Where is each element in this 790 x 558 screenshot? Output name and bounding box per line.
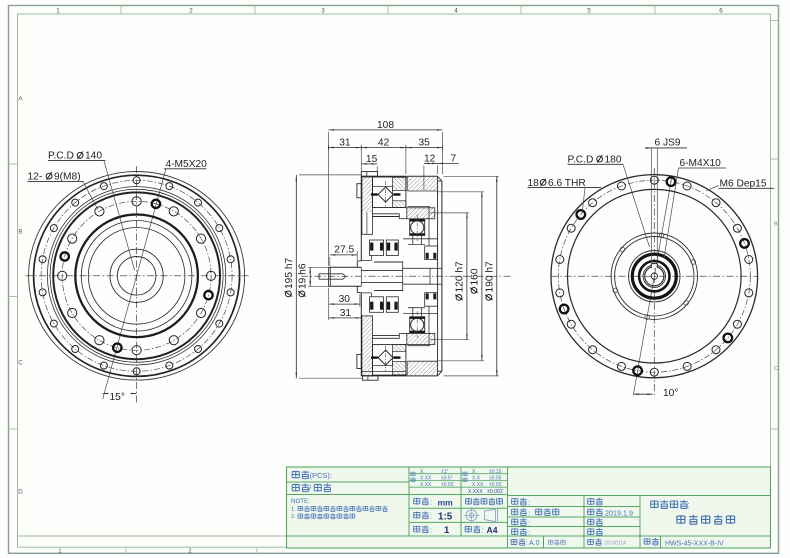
svg-text::: : (528, 508, 530, 517)
svg-text:(PCS):: (PCS): (310, 471, 333, 480)
svg-text:5: 5 (587, 8, 591, 15)
svg-text:C: C (18, 360, 23, 367)
svg-text:27.5: 27.5 (334, 245, 354, 256)
svg-text:2: 2 (188, 549, 191, 555)
svg-text::: : (687, 500, 689, 510)
svg-text:160: 160 (469, 268, 480, 285)
svg-text:20190114: 20190114 (604, 541, 626, 547)
svg-text:M6 Dep15: M6 Dep15 (720, 179, 767, 190)
svg-text:6: 6 (719, 8, 723, 15)
svg-text:±0.5°: ±0.5° (441, 476, 453, 482)
svg-text::: : (430, 512, 432, 521)
svg-text:18: 18 (528, 178, 540, 189)
svg-text:9(M8): 9(M8) (54, 172, 81, 183)
svg-text:±0.02: ±0.02 (441, 482, 454, 488)
svg-text:15: 15 (366, 154, 378, 165)
svg-text:A4: A4 (487, 525, 498, 535)
svg-text:±0.05: ±0.05 (489, 476, 502, 482)
svg-text:X.: X. (420, 469, 425, 475)
svg-text:140: 140 (85, 151, 102, 162)
svg-text:: A.0: : A.0 (526, 540, 540, 547)
svg-text:190 h7: 190 h7 (484, 261, 495, 292)
svg-text:1:5: 1:5 (438, 511, 453, 522)
svg-text:X.XX: X.XX (420, 476, 432, 482)
svg-text:NOTE:: NOTE: (291, 498, 310, 505)
svg-text:2019.1.9: 2019.1.9 (605, 508, 633, 517)
svg-text:7: 7 (450, 153, 456, 164)
svg-text:1: 1 (56, 8, 60, 15)
svg-text:19 h6: 19 h6 (297, 263, 308, 289)
svg-text:12-: 12- (28, 172, 43, 183)
svg-text:±0.02: ±0.02 (489, 482, 502, 488)
svg-text::: : (430, 498, 432, 507)
svg-text:X.: X. (472, 469, 477, 475)
svg-text:35: 35 (419, 138, 431, 149)
svg-text:1: 1 (58, 549, 61, 555)
svg-text:12: 12 (424, 153, 436, 164)
svg-text:2: 2 (189, 8, 193, 15)
svg-text:10°: 10° (663, 388, 678, 399)
svg-text:±0.15: ±0.15 (489, 469, 502, 475)
svg-text:120 h7: 120 h7 (454, 261, 465, 292)
svg-text:2.: 2. (291, 514, 296, 520)
svg-text:31: 31 (339, 138, 351, 149)
svg-text:P.C.D: P.C.D (48, 151, 74, 162)
svg-text:108: 108 (377, 120, 394, 131)
svg-text:180: 180 (605, 154, 622, 165)
svg-text:B: B (774, 222, 778, 228)
svg-text::: : (657, 538, 659, 547)
svg-text:30: 30 (339, 294, 351, 305)
svg-text:195 h7: 195 h7 (284, 258, 295, 289)
svg-text:C: C (774, 366, 778, 372)
svg-text::: : (528, 498, 530, 507)
svg-text:6-M4X10: 6-M4X10 (680, 158, 722, 169)
svg-text:X.XX: X.XX (472, 482, 484, 488)
svg-text:6 JS9: 6 JS9 (655, 138, 681, 149)
svg-text:31: 31 (340, 308, 352, 319)
svg-text:42: 42 (378, 138, 390, 149)
svg-text:±0.002: ±0.002 (487, 489, 503, 495)
svg-text:15°: 15° (110, 392, 125, 403)
svg-text:mm: mm (438, 497, 454, 507)
svg-text:3: 3 (321, 8, 325, 15)
svg-text:HWS-45-XXX-B-IV: HWS-45-XXX-B-IV (665, 540, 724, 547)
svg-text::: : (482, 526, 484, 535)
svg-text:1: 1 (444, 525, 450, 536)
svg-text:X.XXX: X.XXX (468, 489, 483, 495)
svg-text:±1°: ±1° (441, 469, 449, 475)
svg-text:B: B (18, 229, 22, 236)
svg-text::: : (528, 528, 530, 537)
svg-text:1.: 1. (291, 507, 296, 513)
svg-text:4: 4 (454, 8, 458, 15)
svg-text::: : (528, 518, 530, 527)
svg-text::: : (430, 526, 432, 535)
svg-text:X.XX: X.XX (420, 482, 432, 488)
svg-text:D: D (18, 489, 23, 496)
svg-text:4-M5X20: 4-M5X20 (166, 159, 208, 170)
svg-text:P.C.D: P.C.D (568, 154, 594, 165)
svg-text:X.X: X.X (472, 476, 481, 482)
svg-text:6.6 THR: 6.6 THR (548, 178, 586, 189)
